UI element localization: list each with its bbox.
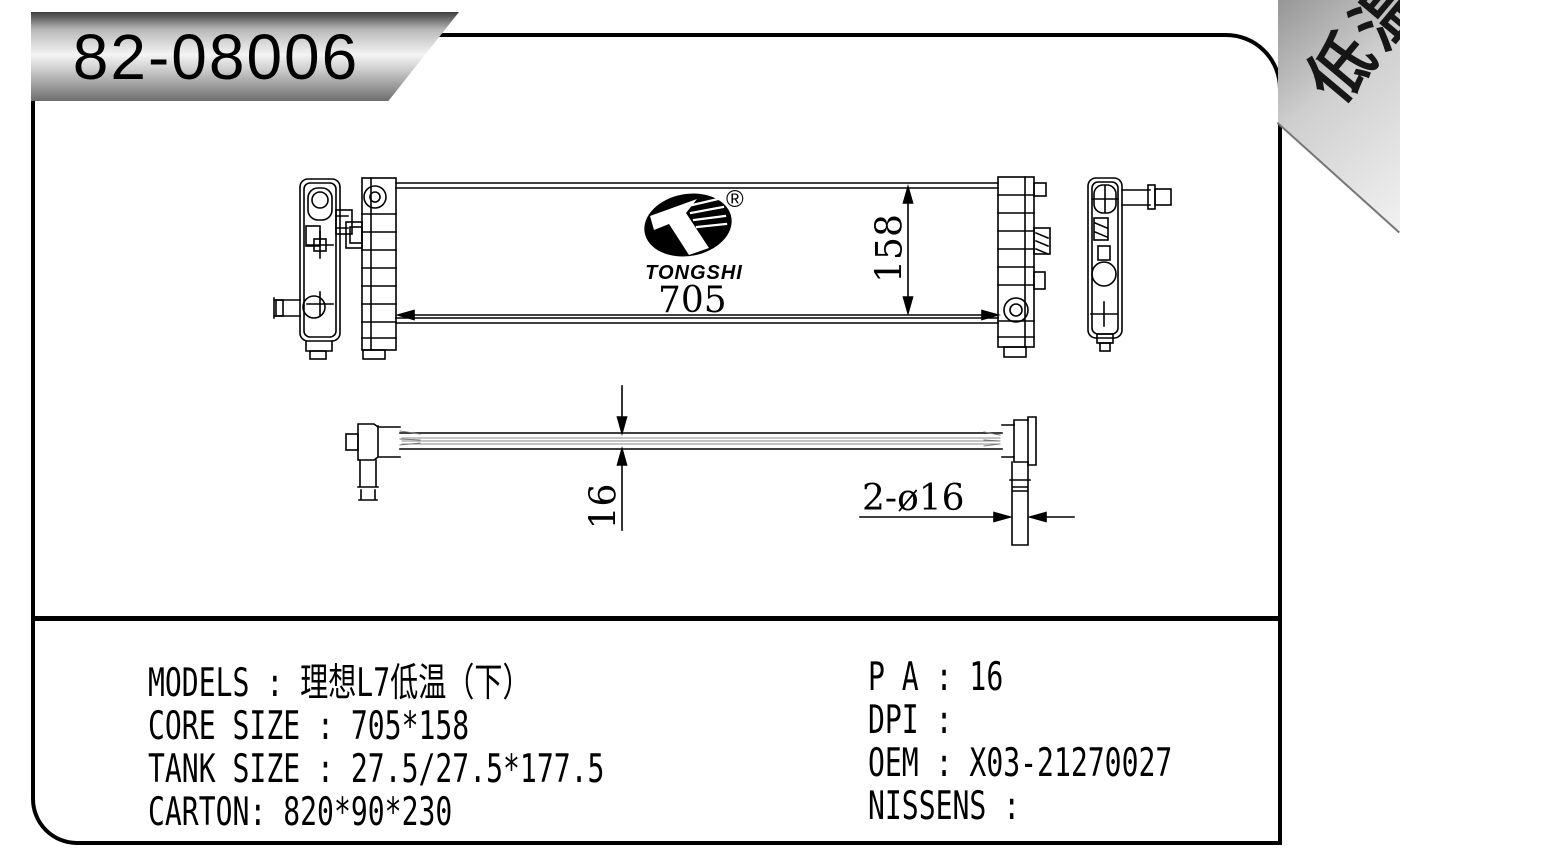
spec-core-size: CORE SIZE : 705*158	[148, 705, 604, 748]
spec-oem: OEM : X03-21270027	[868, 742, 1172, 785]
registered-trademark-icon: ®	[726, 186, 744, 214]
tongshi-logo-icon	[639, 187, 736, 263]
dim-core-height-label: 158	[870, 207, 911, 291]
spec-tank-size: TANK SIZE : 27.5/27.5*177.5	[148, 748, 604, 791]
right-bracket-view	[1088, 178, 1171, 351]
left-bracket-view	[274, 179, 352, 359]
datasheet-page: 82-08006 低温 ® TONGSHI 705 158 16 2-ø16 M…	[0, 0, 1560, 867]
part-number: 82-08006	[31, 12, 459, 101]
spec-models: MODELS : 理想L7低温（下）	[148, 662, 604, 705]
spec-list-right: P A : 16 DPI : OEM : X03-21270027 NISSEN…	[868, 656, 1291, 828]
part-number-badge: 82-08006	[31, 12, 459, 101]
dim-core-width-label: 705	[658, 280, 727, 321]
spec-carton: CARTON: 820*90*230	[148, 791, 604, 834]
spec-nissens: NISSENS :	[868, 785, 1172, 828]
dim-pipe-label: 2-ø16	[862, 478, 965, 519]
left-tank-view	[346, 178, 396, 359]
right-tank-view	[998, 177, 1050, 357]
dim-thickness-label: 16	[584, 475, 625, 539]
spec-list-left: MODELS : 理想L7低温（下） CORE SIZE : 705*158 T…	[148, 662, 782, 834]
spec-pa: P A : 16	[868, 656, 1172, 699]
spec-dpi: DPI :	[868, 699, 1172, 742]
